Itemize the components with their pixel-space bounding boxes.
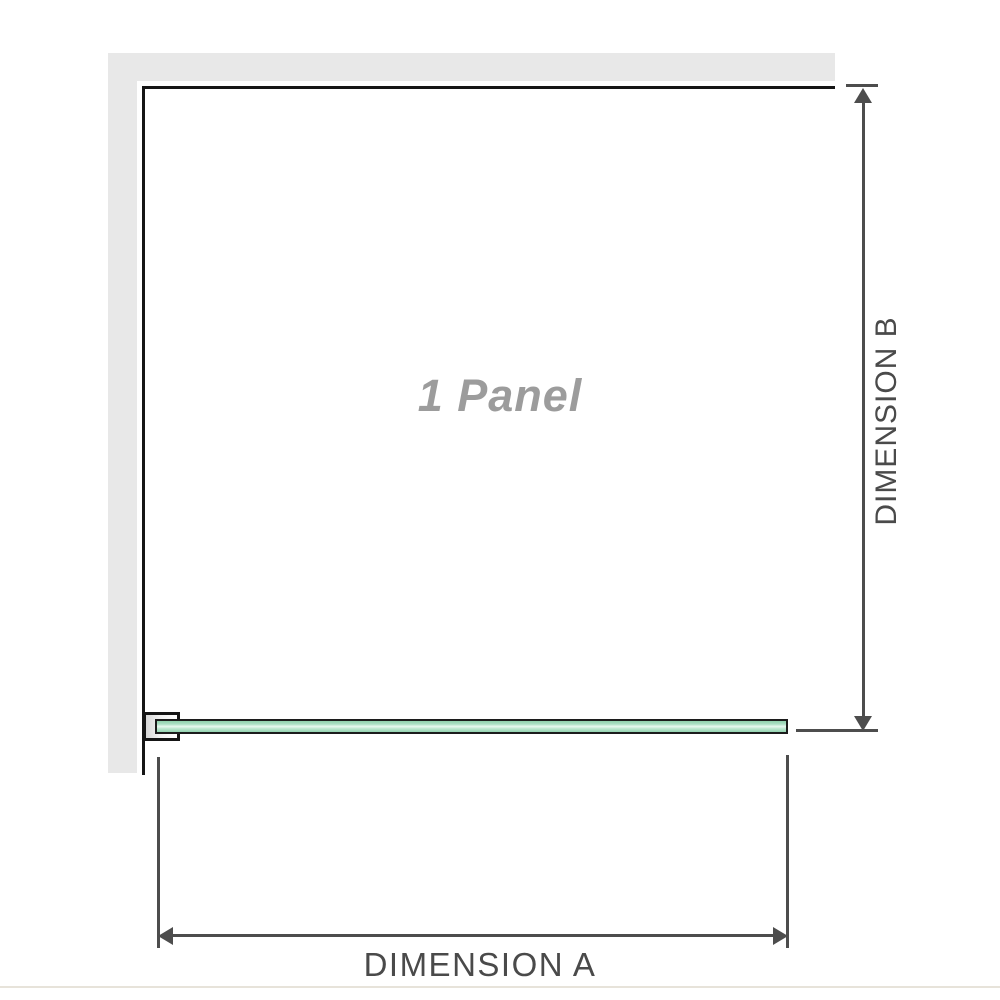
panel-count-label: 1 Panel bbox=[418, 370, 583, 422]
dimension-a-left-extension bbox=[157, 757, 160, 948]
panel-dimension-diagram: 1 Panel DIMENSION B DIMENSION A bbox=[0, 0, 1000, 1000]
wall-left bbox=[108, 53, 137, 773]
wall-top bbox=[108, 53, 835, 81]
dimension-b-label: DIMENSION B bbox=[870, 316, 904, 525]
ground-line bbox=[0, 986, 1000, 988]
dimension-a-right-extension bbox=[786, 755, 789, 948]
arrow-left-icon bbox=[158, 927, 173, 945]
panel-left-edge bbox=[142, 86, 145, 775]
arrow-up-icon bbox=[854, 88, 872, 103]
panel-top-edge bbox=[142, 86, 835, 89]
glass-panel bbox=[155, 719, 788, 734]
arrow-down-icon bbox=[854, 716, 872, 731]
dimension-a-line bbox=[171, 934, 774, 937]
dimension-b-top-tick bbox=[846, 84, 878, 87]
dimension-a-label: DIMENSION A bbox=[364, 946, 597, 984]
dimension-b-line bbox=[862, 96, 865, 722]
arrow-right-icon bbox=[773, 927, 788, 945]
